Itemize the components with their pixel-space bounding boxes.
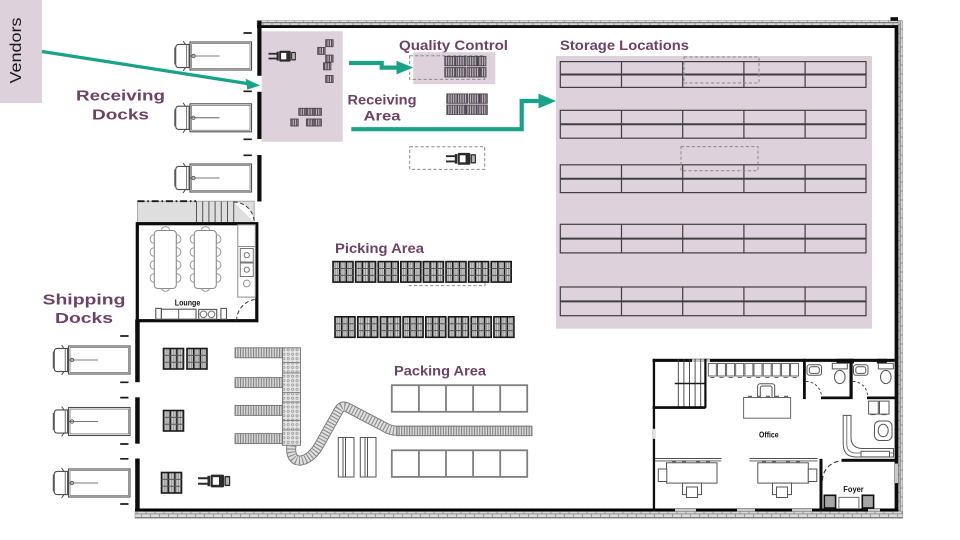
svg-text:Lounge: Lounge xyxy=(175,298,201,307)
svg-text:Vendors: Vendors xyxy=(8,17,25,83)
svg-text:Storage Locations: Storage Locations xyxy=(560,37,689,53)
svg-text:Receiving: Receiving xyxy=(348,92,417,107)
svg-text:Docks: Docks xyxy=(92,107,149,124)
svg-text:Receiving: Receiving xyxy=(76,88,165,105)
svg-text:Packing Area: Packing Area xyxy=(394,363,487,378)
svg-text:Area: Area xyxy=(364,109,402,124)
svg-text:Foyer: Foyer xyxy=(843,485,864,494)
svg-text:Shipping: Shipping xyxy=(43,292,126,309)
svg-text:Quality Control: Quality Control xyxy=(399,38,508,53)
svg-text:Picking Area: Picking Area xyxy=(335,241,425,256)
svg-text:Office: Office xyxy=(759,430,779,439)
svg-text:Docks: Docks xyxy=(55,310,113,327)
